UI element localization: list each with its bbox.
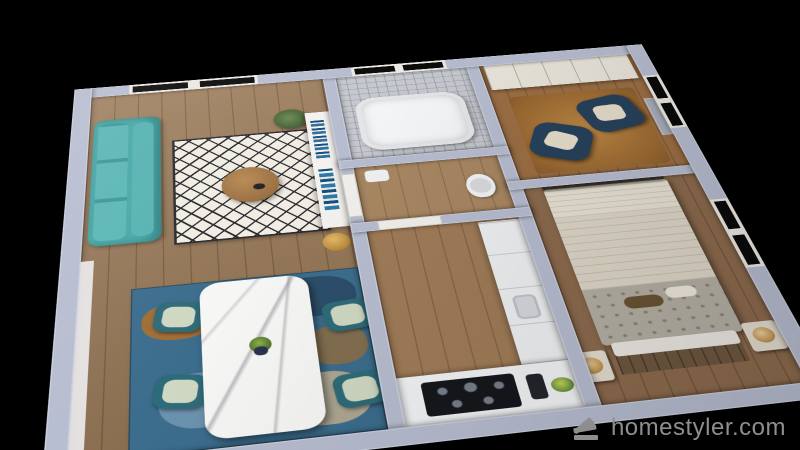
homestyler-logo-icon <box>570 414 602 442</box>
dining-chair <box>151 302 205 332</box>
marble-dining-table <box>199 274 328 441</box>
wc-sink <box>364 169 390 182</box>
watermark-text: homestyler.com <box>611 414 786 442</box>
apartment-3d-plan <box>41 44 800 450</box>
floorplan-render-stage: homestyler.com <box>0 0 800 450</box>
bathtub <box>353 90 478 151</box>
dining-chair <box>151 374 209 408</box>
watermark: homestyler.com <box>570 414 786 442</box>
teal-sofa <box>87 116 161 248</box>
